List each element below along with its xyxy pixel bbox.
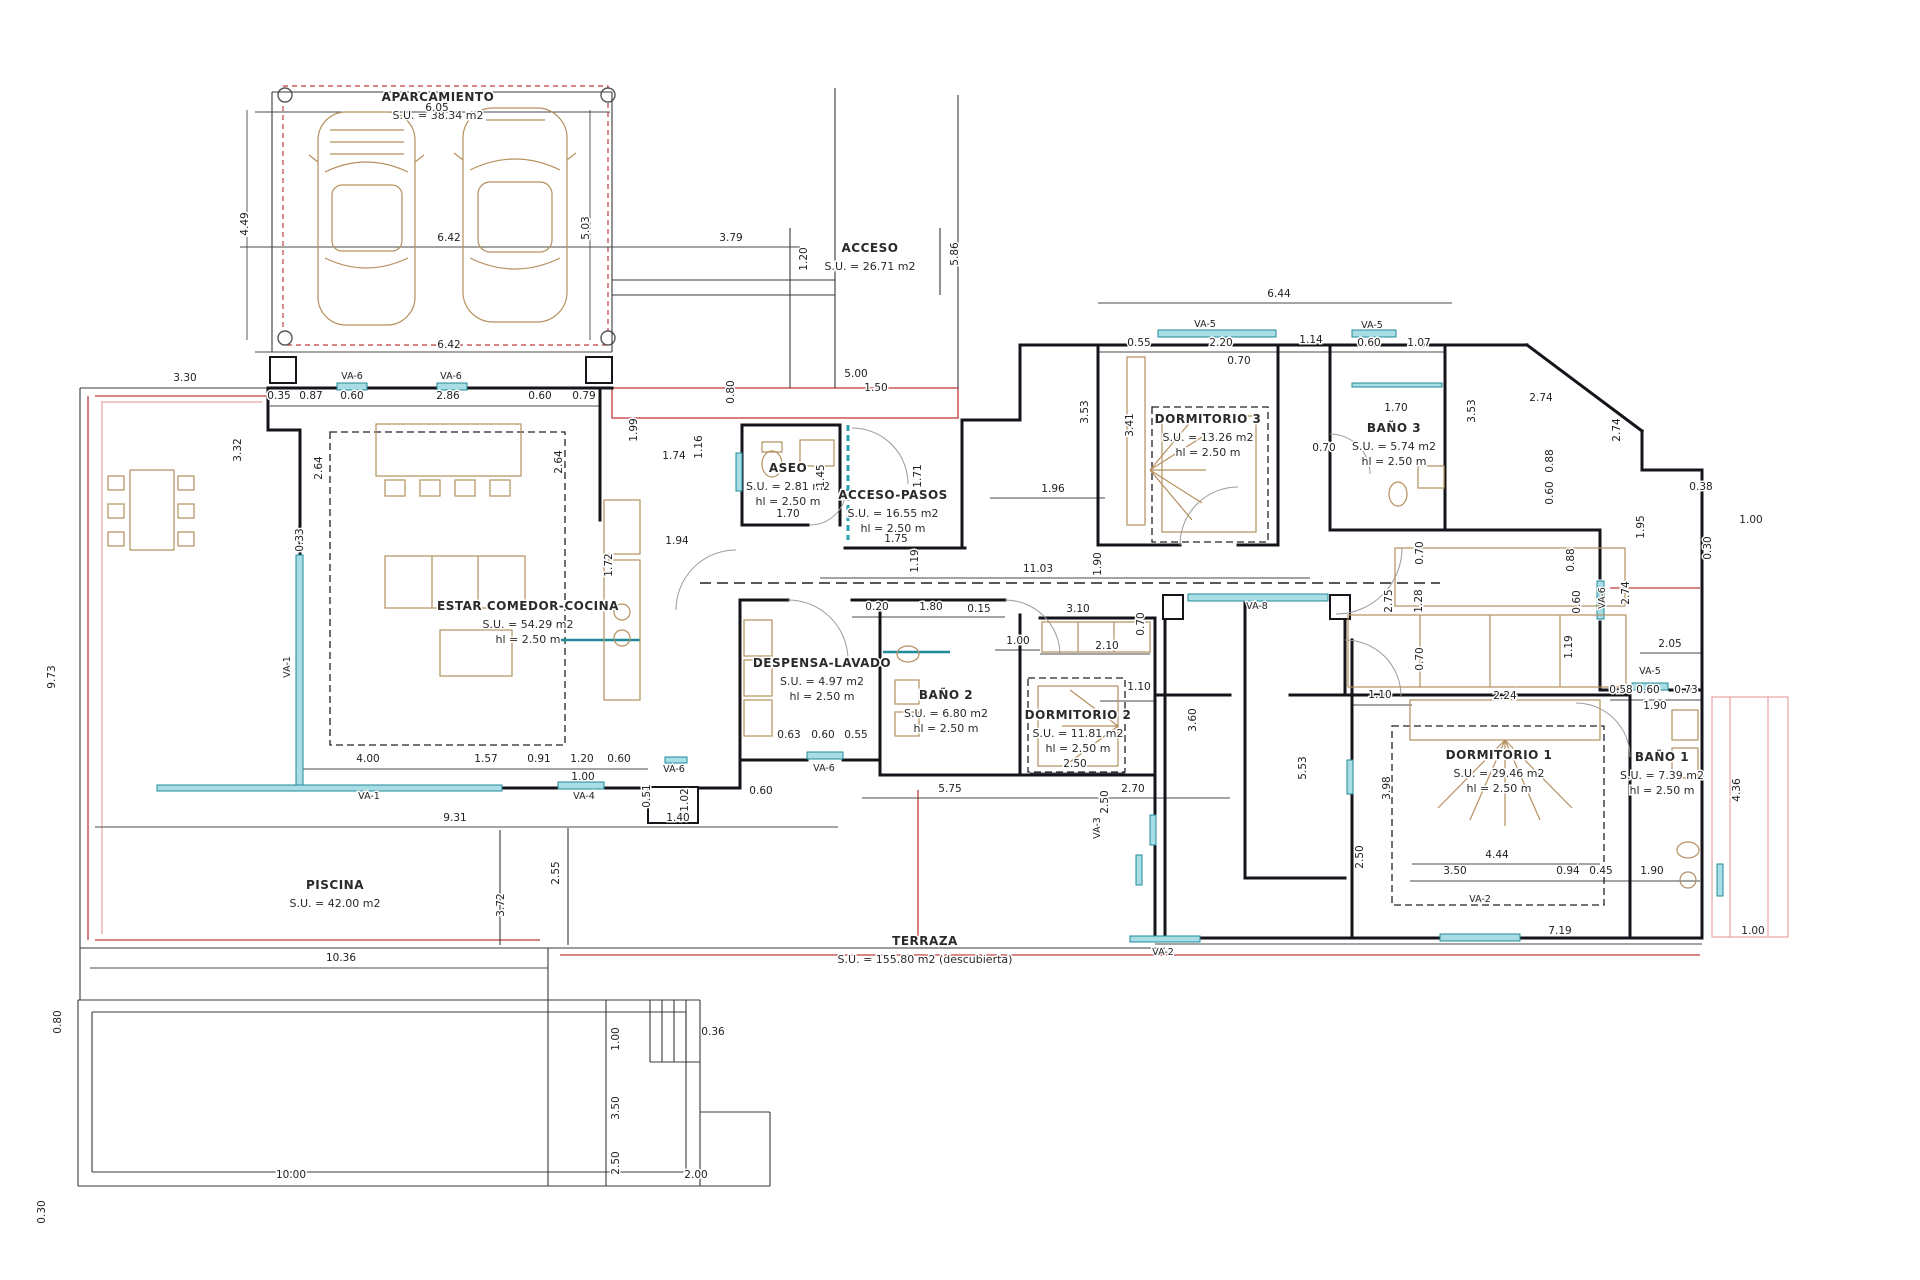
dimension-label: 0.70 (1227, 355, 1250, 367)
dimension-label: 3.30 (173, 372, 196, 384)
site-and-terrace-lines (78, 88, 1165, 1186)
window-tag: VA-6 (440, 371, 462, 382)
dimension-label: 3.10 (1066, 603, 1089, 615)
dimension-label: 1.00 (610, 1027, 622, 1050)
dimension-label: 2.86 (436, 390, 460, 402)
dimension-label: 6.42 (437, 339, 460, 351)
room-area-label: S.U. = 26.71 m2 (825, 260, 916, 273)
dimension-label: 2.10 (1095, 640, 1118, 652)
window-tag-labels: VA-6VA-6VA-5VA-5VA-8VA-6VA-6VA-4VA-1VA-1… (282, 319, 1661, 958)
dimension-label: 0.80 (725, 380, 737, 403)
dimension-label: 3.50 (610, 1096, 622, 1119)
room-area-label: S.U. = 29.46 m2 (1454, 767, 1545, 780)
dimension-label: 1.74 (662, 450, 686, 462)
dimension-label: 1.90 (1092, 552, 1104, 575)
window-tag: VA-5 (1361, 320, 1383, 331)
room-label: ESTAR COMEDOR-COCINA (437, 599, 619, 613)
dimension-label: 2.24 (1493, 690, 1517, 702)
dimension-label: 2.05 (1658, 638, 1681, 650)
room-label: BAÑO 3 (1367, 420, 1421, 435)
room-height-label: hl = 2.50 m (756, 495, 821, 508)
dimension-label: 1.57 (474, 753, 497, 765)
dimension-label: 11.03 (1023, 563, 1053, 575)
dimension-label: 3.32 (232, 438, 244, 461)
dimension-label: 1.00 (1739, 514, 1762, 526)
dimension-label: 0.70 (1135, 612, 1147, 635)
window-tag: VA-6 (663, 764, 685, 775)
bath1-fixtures (1672, 710, 1699, 888)
dimension-label: 0.20 (865, 601, 888, 613)
dimension-label: 9.73 (46, 665, 58, 688)
dimension-label: 2.20 (1209, 337, 1232, 349)
dimension-label: 1.16 (693, 435, 705, 459)
dimension-label: 2.50 (1063, 758, 1086, 770)
window-tag: VA-5 (1194, 319, 1216, 330)
dimension-label: 0.70 (1414, 647, 1426, 670)
dimension-label: 5.86 (949, 242, 961, 266)
dimension-label: 1.00 (1006, 635, 1029, 647)
laundry-appliances (744, 620, 772, 736)
dimension-label: 0.51 (641, 784, 653, 807)
room-area-label: S.U. = 11.81 m2 (1033, 727, 1124, 740)
dimension-label: 0.60 (1357, 337, 1380, 349)
room-height-label: hl = 2.50 m (1046, 742, 1111, 755)
room-label: DESPENSA-LAVADO (753, 656, 891, 670)
terrace-table (108, 470, 194, 550)
dimension-label: 1.99 (628, 418, 640, 441)
dimension-label: 0.60 (607, 753, 630, 765)
dimension-label: 1.28 (1413, 589, 1425, 612)
dimension-label: 2.00 (684, 1169, 707, 1181)
dimension-label: 2.50 (610, 1151, 622, 1174)
dimension-label: 9.31 (443, 812, 466, 824)
dimension-label: 0.79 (572, 390, 595, 402)
dimension-label: 1.07 (1407, 337, 1430, 349)
dimension-label: 0.55 (1127, 337, 1150, 349)
dimension-label: 0.60 (528, 390, 551, 402)
dimension-label: 0.60 (1636, 684, 1659, 696)
window-tag: VA-2 (1469, 894, 1491, 905)
dimension-label: 0.58 (1609, 684, 1632, 696)
dimension-label: 0.88 (1565, 548, 1577, 571)
room-height-label: hl = 2.50 m (790, 690, 855, 703)
room-label: BAÑO 1 (1635, 749, 1689, 764)
window-tag: VA-5 (1639, 666, 1661, 677)
dimension-label: 1.70 (776, 508, 799, 520)
room-area-label: S.U. = 5.74 m2 (1352, 440, 1436, 453)
room-area-label: S.U. = 13.26 m2 (1163, 431, 1254, 444)
dimension-label: 3.72 (495, 893, 507, 916)
dimension-label: 4.49 (239, 212, 251, 235)
room-height-label: hl = 2.50 m (1176, 446, 1241, 459)
dimension-label: 5.03 (580, 216, 592, 239)
dimension-label: 7.19 (1548, 925, 1571, 937)
room-area-label: S.U. = 6.80 m2 (904, 707, 988, 720)
room-label: TERRAZA (892, 934, 958, 948)
room-label: DORMITORIO 1 (1446, 748, 1553, 762)
dimension-label: 6.05 (425, 102, 448, 114)
dining-table (376, 424, 521, 496)
dimension-label: 1.19 (909, 549, 921, 572)
dimension-label: 3.53 (1466, 399, 1478, 422)
room-label: DORMITORIO 3 (1155, 412, 1262, 426)
dimension-label: 3.53 (1079, 400, 1091, 423)
bed-dorm3 (1127, 357, 1256, 532)
room-height-label: hl = 2.50 m (1630, 784, 1695, 797)
dimension-label: 0.91 (527, 753, 550, 765)
dimension-label: 2.50 (1354, 845, 1366, 868)
car-2 (454, 108, 576, 322)
dimension-label: 2.74 (1620, 581, 1632, 605)
room-labels: APARCAMIENTOS.U. = 38.34 m2ACCESOS.U. = … (290, 90, 1704, 966)
dimension-label: 3.41 (1124, 413, 1136, 436)
dimension-label: 0.30 (1702, 536, 1714, 559)
dimension-label: 1.75 (884, 533, 907, 545)
floor-plan-page: APARCAMIENTOS.U. = 38.34 m2ACCESOS.U. = … (0, 0, 1920, 1280)
dimension-label: 0.30 (36, 1200, 48, 1223)
window-tag: VA-3 (1092, 817, 1103, 839)
window-tag: VA-6 (1597, 587, 1608, 609)
room-height-label: hl = 2.50 m (496, 633, 561, 646)
dimension-label: 0.87 (299, 390, 322, 402)
window-tag: VA-2 (1152, 947, 1174, 958)
dimension-label: 5.53 (1297, 756, 1309, 779)
window-tag: VA-6 (341, 371, 363, 382)
dimension-label: 6.42 (437, 232, 460, 244)
dimension-label: 1.72 (603, 553, 615, 576)
car-1 (309, 112, 424, 325)
window-tag: VA-1 (282, 656, 293, 678)
dimension-label: 2.74 (1529, 392, 1553, 404)
dimension-label: 1.14 (1299, 334, 1323, 346)
room-height-label: hl = 2.50 m (1362, 455, 1427, 468)
room-area-label: S.U. = 16.55 m2 (848, 507, 939, 520)
dimension-label: 1.90 (1640, 865, 1663, 877)
dimension-label: 0.60 (811, 729, 834, 741)
dimension-label: 0.35 (267, 390, 290, 402)
room-area-label: S.U. = 42.00 m2 (290, 897, 381, 910)
dimension-label: 0.63 (777, 729, 800, 741)
dimension-label: 10.36 (326, 952, 356, 964)
room-area-label: S.U. = 7.39 m2 (1620, 769, 1704, 782)
dimension-label: 4.00 (356, 753, 379, 765)
window-tag: VA-6 (813, 763, 835, 774)
dimension-label: 2.64 (553, 450, 565, 474)
dimension-label: 6.44 (1267, 288, 1291, 300)
dimension-label: 0.70 (1312, 442, 1335, 454)
dimension-label: 5.75 (938, 783, 961, 795)
dimension-label: 1.00 (571, 771, 594, 783)
dimension-label: 0.70 (1414, 541, 1426, 564)
dimension-label: 0.60 (1544, 481, 1556, 504)
dimension-label: 0.73 (1674, 684, 1697, 696)
floor-plan-drawing: APARCAMIENTOS.U. = 38.34 m2ACCESOS.U. = … (0, 0, 1920, 1280)
dimension-label: 1.00 (1741, 925, 1764, 937)
dimension-label: 1.96 (1041, 483, 1065, 495)
dimension-label: 2.74 (1611, 418, 1623, 442)
dimension-label: 5.00 (844, 368, 867, 380)
room-label: ACCESO (842, 241, 899, 255)
red-boundary-lines (88, 86, 1788, 955)
dimension-label: 1.10 (1368, 689, 1391, 701)
dimension-label: 2.55 (550, 861, 562, 884)
room-height-label: hl = 2.50 m (1467, 782, 1532, 795)
dimension-label: 0.60 (749, 785, 772, 797)
room-label: ACCESO-PASOS (838, 488, 948, 502)
dimension-label: 1.19 (1563, 635, 1575, 658)
dimension-label: 0.80 (52, 1010, 64, 1033)
dimension-label: 1.50 (864, 382, 887, 394)
room-area-label: S.U. = 155.80 m2 (descubierta) (838, 953, 1013, 966)
window-tag: VA-4 (573, 791, 595, 802)
dimension-label: 1.94 (665, 535, 689, 547)
dimension-label: 3.60 (1187, 708, 1199, 731)
dimension-label: 2.70 (1121, 783, 1144, 795)
room-area-label: S.U. = 54.29 m2 (483, 618, 574, 631)
dimension-label: 3.79 (719, 232, 742, 244)
dimension-label: 1.20 (570, 753, 593, 765)
dimension-label: 0.55 (844, 729, 867, 741)
sofa (385, 556, 525, 676)
window-tag: VA-1 (358, 791, 380, 802)
dimension-label: 4.44 (1485, 849, 1509, 861)
dimension-label: 1.10 (1127, 681, 1150, 693)
dimension-label: 3.98 (1381, 776, 1393, 799)
dimension-label: 0.88 (1544, 449, 1556, 472)
dimension-label: 1.20 (798, 247, 810, 270)
dimension-label: 1.71 (912, 464, 924, 487)
dimension-label: 1.45 (815, 464, 827, 487)
dimension-label: 0.38 (1689, 481, 1712, 493)
dimension-label: 10.00 (276, 1169, 306, 1181)
room-label: ASEO (769, 461, 807, 475)
dimension-label: 0.45 (1589, 865, 1612, 877)
room-height-label: hl = 2.50 m (914, 722, 979, 735)
dimension-label: 1.90 (1643, 700, 1666, 712)
room-label: PISCINA (306, 878, 364, 892)
room-area-label: S.U. = 4.97 m2 (780, 675, 864, 688)
dimension-label: 2.64 (313, 456, 325, 480)
dimension-label: 1.80 (919, 601, 942, 613)
window-tag: VA-8 (1246, 601, 1268, 612)
room-label: DORMITORIO 2 (1025, 708, 1132, 722)
dimension-label: 2.75 (1383, 589, 1395, 612)
dimension-label: 3.50 (1443, 865, 1466, 877)
bath3-fixtures (1389, 466, 1444, 506)
dimension-label: 0.36 (701, 1026, 725, 1038)
dimension-label: 1.70 (1384, 402, 1407, 414)
dimension-label: 1.95 (1635, 515, 1647, 538)
room-label: BAÑO 2 (919, 687, 973, 702)
dimension-label: 0.60 (1571, 590, 1583, 613)
dimension-label: 4.36 (1731, 778, 1743, 802)
dimension-label: 0.15 (967, 603, 990, 615)
dimension-label: 1.40 (666, 812, 689, 824)
dimension-label: 0.94 (1556, 865, 1580, 877)
dimension-label: 1.02 (679, 788, 691, 811)
dimension-label: 0.60 (340, 390, 363, 402)
dimension-label: 2.50 (1099, 790, 1111, 813)
dimension-label: 0.33 (294, 528, 306, 551)
